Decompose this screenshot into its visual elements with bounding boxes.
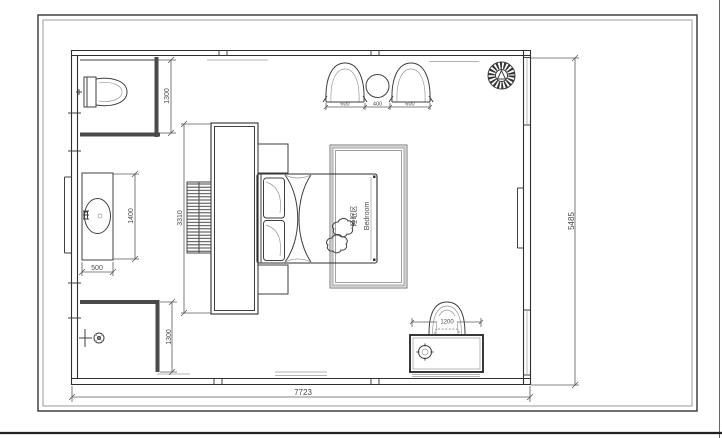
nightstand-top <box>258 144 288 173</box>
dimension-overall-height: 5485 <box>531 55 579 388</box>
dimension-seating: 600 400 600 <box>324 102 432 111</box>
dimension-overall-width: 7723 <box>69 386 533 402</box>
toilet <box>76 77 127 107</box>
armchair-right <box>389 63 433 102</box>
floor-plan-canvas: 1300 1400 500 <box>0 0 722 438</box>
armchair-left <box>323 63 367 102</box>
dimension-desk: 1200 <box>410 316 483 327</box>
ceiling-fan-icon <box>488 62 515 89</box>
sheet-border <box>0 0 722 438</box>
dim-text-vanity-length: 1400 <box>128 208 135 224</box>
shower-head-icon <box>79 329 104 347</box>
dimension-wc-depth: 1300 <box>157 57 176 136</box>
dim-text-desk-width: 1200 <box>440 320 454 326</box>
dim-text-armchair-left: 600 <box>340 102 349 108</box>
dimension-shower-depth: 1300 <box>160 299 177 375</box>
bed: 睡眠区 Bedroom <box>257 174 377 263</box>
tea-table <box>366 75 389 98</box>
dim-text-overall-width: 7723 <box>294 388 312 397</box>
dimension-vanity-length: 1400 <box>113 171 139 262</box>
decor-clouds-icon <box>327 218 354 252</box>
dim-text-cabinet-length: 3310 <box>177 210 184 226</box>
blanket-fold <box>285 175 311 262</box>
dimension-vanity-width: 500 <box>79 262 116 276</box>
pillow <box>264 178 285 218</box>
shower-room <box>80 300 190 374</box>
dim-text-tea-table: 400 <box>373 102 382 108</box>
cabinet <box>211 123 258 314</box>
pillow <box>264 221 285 261</box>
dim-text-vanity-width: 500 <box>91 265 103 272</box>
sink-vanity <box>82 173 113 260</box>
faucet-icon <box>83 211 89 219</box>
cabinet-hatch-strip <box>187 182 211 253</box>
dim-text-overall-height: 5485 <box>567 212 576 230</box>
dim-text-wc-depth: 1300 <box>164 88 171 104</box>
desk <box>410 335 483 377</box>
dim-text-armchair-right: 600 <box>405 102 414 108</box>
nightstand-bottom <box>258 265 288 294</box>
room-label-cn: 睡眠区 <box>350 206 358 227</box>
flush-valve-icon <box>76 89 82 95</box>
door-threshold <box>275 372 327 376</box>
floor-plan-drawing: 1300 1400 500 <box>0 0 722 438</box>
dim-text-shower-depth: 1300 <box>166 329 173 345</box>
room-label-en: Bedroom <box>364 202 371 231</box>
